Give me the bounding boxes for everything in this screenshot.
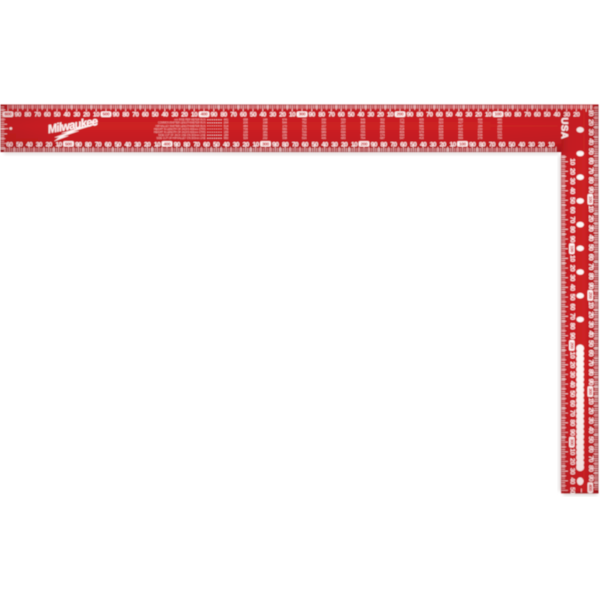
svg-text:80: 80: [587, 177, 594, 184]
svg-text:30: 30: [430, 141, 437, 148]
svg-text:90: 90: [272, 141, 279, 148]
svg-text:50: 50: [568, 294, 575, 301]
svg-text:60: 60: [400, 141, 407, 148]
svg-text:30: 30: [587, 321, 594, 328]
svg-text:70: 70: [95, 141, 102, 148]
svg-text:10: 10: [587, 302, 594, 309]
svg-text:687: 687: [380, 136, 385, 140]
svg-text:40: 40: [420, 141, 427, 148]
svg-text:50: 50: [587, 244, 594, 251]
svg-text:20: 20: [568, 265, 575, 272]
svg-text:70: 70: [426, 112, 433, 119]
svg-text:30: 30: [367, 112, 374, 119]
svg-text:20: 20: [440, 141, 447, 148]
svg-text:202: 202: [263, 136, 268, 140]
svg-text:90: 90: [75, 141, 82, 148]
svg-text:50: 50: [312, 141, 319, 148]
svg-text:200: 200: [361, 141, 369, 146]
svg-text:70: 70: [568, 216, 575, 223]
svg-text:10: 10: [449, 141, 456, 148]
svg-text:50: 50: [410, 141, 417, 148]
svg-text:950: 950: [224, 136, 229, 140]
svg-text:516: 516: [302, 136, 307, 140]
svg-text:80: 80: [568, 323, 575, 330]
svg-text:200: 200: [588, 292, 593, 300]
svg-text:30: 30: [568, 274, 575, 281]
svg-text:406: 406: [322, 136, 327, 140]
svg-text:10: 10: [351, 141, 358, 148]
svg-text:10: 10: [568, 158, 575, 165]
svg-text:400: 400: [164, 141, 172, 146]
svg-text:50: 50: [213, 141, 220, 148]
svg-text:10: 10: [289, 112, 296, 119]
svg-text:100: 100: [588, 196, 593, 204]
svg-text:40: 40: [568, 187, 575, 194]
svg-text:20: 20: [568, 168, 575, 175]
svg-text:90: 90: [113, 112, 120, 119]
svg-text:SIDE CUT OF HIP/VALLEY ON 300m: SIDE CUT OF HIP/VALLEY ON 300mm LINE: [156, 137, 205, 140]
svg-text:60: 60: [587, 254, 594, 261]
svg-text:70: 70: [292, 141, 299, 148]
svg-text:90: 90: [174, 141, 181, 148]
svg-text:547: 547: [400, 136, 405, 140]
svg-text:60: 60: [587, 350, 594, 357]
svg-text:40: 40: [223, 141, 230, 148]
svg-text:10: 10: [568, 352, 575, 359]
svg-text:80: 80: [587, 369, 594, 376]
svg-text:100: 100: [459, 141, 467, 146]
svg-text:20: 20: [587, 215, 594, 222]
svg-text:100: 100: [569, 245, 574, 253]
svg-text:90: 90: [211, 112, 218, 119]
svg-text:200: 200: [397, 112, 405, 117]
svg-text:80: 80: [587, 273, 594, 280]
svg-text:300: 300: [262, 141, 270, 146]
svg-text:90: 90: [568, 236, 575, 243]
svg-text:80: 80: [122, 112, 129, 119]
svg-text:20: 20: [568, 361, 575, 368]
svg-text:80: 80: [381, 141, 388, 148]
svg-text:30: 30: [269, 112, 276, 119]
svg-text:10: 10: [387, 112, 394, 119]
svg-text:60: 60: [568, 303, 575, 310]
svg-text:20: 20: [243, 141, 250, 148]
svg-text:90: 90: [587, 283, 594, 290]
svg-text:60: 60: [105, 141, 112, 148]
svg-text:70: 70: [390, 141, 397, 148]
svg-text:90: 90: [587, 186, 594, 193]
svg-text:90: 90: [309, 112, 316, 119]
svg-text:10: 10: [252, 141, 259, 148]
svg-text:70: 70: [568, 313, 575, 320]
svg-text:80: 80: [85, 141, 92, 148]
svg-text:50: 50: [568, 197, 575, 204]
svg-text:60: 60: [587, 158, 594, 165]
svg-text:20: 20: [587, 311, 594, 318]
svg-text:60: 60: [142, 112, 149, 119]
svg-text:70: 70: [230, 112, 237, 119]
svg-text:50: 50: [250, 112, 257, 119]
svg-text:10: 10: [568, 255, 575, 262]
svg-text:500: 500: [103, 112, 111, 117]
svg-text:70: 70: [587, 263, 594, 270]
svg-text:40: 40: [587, 234, 594, 241]
svg-text:10: 10: [154, 141, 161, 148]
svg-text:10: 10: [587, 206, 594, 213]
svg-text:60: 60: [302, 141, 309, 148]
svg-text:70: 70: [587, 167, 594, 174]
svg-text:300: 300: [299, 112, 307, 117]
svg-text:90: 90: [568, 332, 575, 339]
svg-text:30: 30: [331, 141, 338, 148]
svg-text:70: 70: [328, 112, 335, 119]
svg-text:569: 569: [458, 136, 463, 140]
svg-text:40: 40: [568, 284, 575, 291]
svg-text:20: 20: [341, 141, 348, 148]
svg-text:30: 30: [568, 371, 575, 378]
svg-text:40: 40: [321, 141, 328, 148]
svg-text:30: 30: [568, 178, 575, 185]
svg-text:70: 70: [587, 359, 594, 366]
svg-text:30: 30: [233, 141, 240, 148]
svg-text:764: 764: [361, 136, 366, 140]
svg-text:200: 200: [569, 342, 574, 350]
svg-text:40: 40: [124, 141, 131, 148]
svg-text:80: 80: [568, 226, 575, 233]
svg-text:90: 90: [407, 112, 414, 119]
svg-text:90: 90: [371, 141, 378, 148]
svg-text:60: 60: [203, 141, 210, 148]
svg-text:80: 80: [184, 141, 191, 148]
svg-text:50: 50: [115, 141, 122, 148]
svg-text:30: 30: [587, 225, 594, 232]
svg-text:193: 193: [439, 136, 444, 140]
svg-text:400: 400: [201, 112, 209, 117]
svg-text:50: 50: [587, 340, 594, 347]
svg-text:50: 50: [348, 112, 355, 119]
svg-text:329: 329: [243, 136, 248, 140]
svg-text:416: 416: [419, 136, 424, 140]
svg-text:30: 30: [134, 141, 141, 148]
svg-text:40: 40: [162, 112, 169, 119]
svg-text:50: 50: [446, 112, 453, 119]
svg-text:683: 683: [341, 136, 346, 140]
svg-text:80: 80: [282, 141, 289, 148]
svg-text:70: 70: [193, 141, 200, 148]
svg-text:338: 338: [282, 136, 287, 140]
svg-text:60: 60: [568, 207, 575, 214]
svg-text:40: 40: [587, 331, 594, 338]
svg-text:20: 20: [144, 141, 151, 148]
svg-text:50: 50: [152, 112, 159, 119]
svg-text:70: 70: [132, 112, 139, 119]
